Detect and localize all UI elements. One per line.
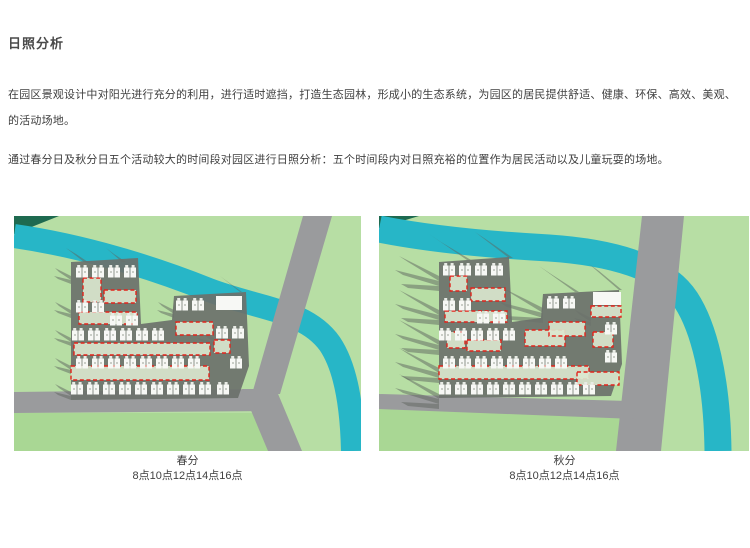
autumn-caption-season: 秋分 — [379, 454, 749, 469]
spring-caption-season: 春分 — [14, 454, 361, 469]
spring-equinox-site-plan-image — [14, 216, 361, 451]
autumn-equinox-figure: 秋分 8点10点12点14点16点 — [379, 216, 749, 484]
sunlight-analysis-figures: 春分 8点10点12点14点16点 — [0, 216, 750, 484]
autumn-caption: 秋分 8点10点12点14点16点 — [379, 454, 749, 484]
spring-caption: 春分 8点10点12点14点16点 — [14, 454, 361, 484]
spring-equinox-figure: 春分 8点10点12点14点16点 — [14, 216, 361, 484]
intro-paragraph-1: 在园区景观设计中对阳光进行充分的利用，进行适时遮挡，打造生态园林，形成小的生态系… — [8, 82, 742, 134]
autumn-equinox-site-plan-image — [379, 216, 749, 451]
page-title: 日照分析 — [8, 33, 750, 52]
autumn-caption-times: 8点10点12点14点16点 — [379, 469, 749, 484]
spring-caption-times: 8点10点12点14点16点 — [14, 469, 361, 484]
intro-paragraph-2: 通过春分日及秋分日五个活动较大的时间段对园区进行日照分析：五个时间段内对日照充裕… — [8, 147, 742, 173]
